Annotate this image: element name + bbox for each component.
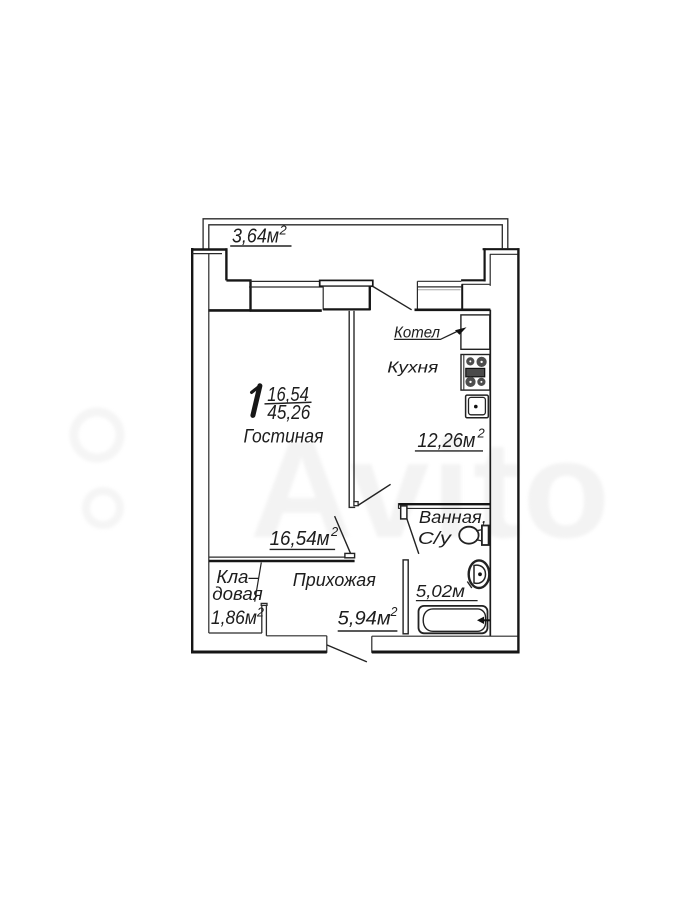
svg-text:С/у: С/у xyxy=(418,528,453,548)
svg-text:2: 2 xyxy=(279,223,288,238)
svg-text:5,02м: 5,02м xyxy=(416,581,465,601)
svg-text:5,94м: 5,94м xyxy=(338,609,391,630)
svg-text:2: 2 xyxy=(390,605,398,619)
svg-text:Ванная,: Ванная, xyxy=(419,507,487,527)
svg-text:1,86м: 1,86м xyxy=(211,608,257,629)
svg-text:16,54м: 16,54м xyxy=(270,528,330,550)
svg-text:3,64м: 3,64м xyxy=(232,225,279,247)
svg-text:Прихожая: Прихожая xyxy=(293,570,376,590)
svg-text:2: 2 xyxy=(256,606,264,620)
svg-text:2: 2 xyxy=(330,524,339,539)
svg-text:Гостиная: Гостиная xyxy=(244,427,324,448)
svg-text:12,26м: 12,26м xyxy=(417,430,475,452)
svg-text:45,26: 45,26 xyxy=(267,402,311,424)
svg-text:Кухня: Кухня xyxy=(387,359,438,376)
svg-text:2: 2 xyxy=(477,426,486,441)
